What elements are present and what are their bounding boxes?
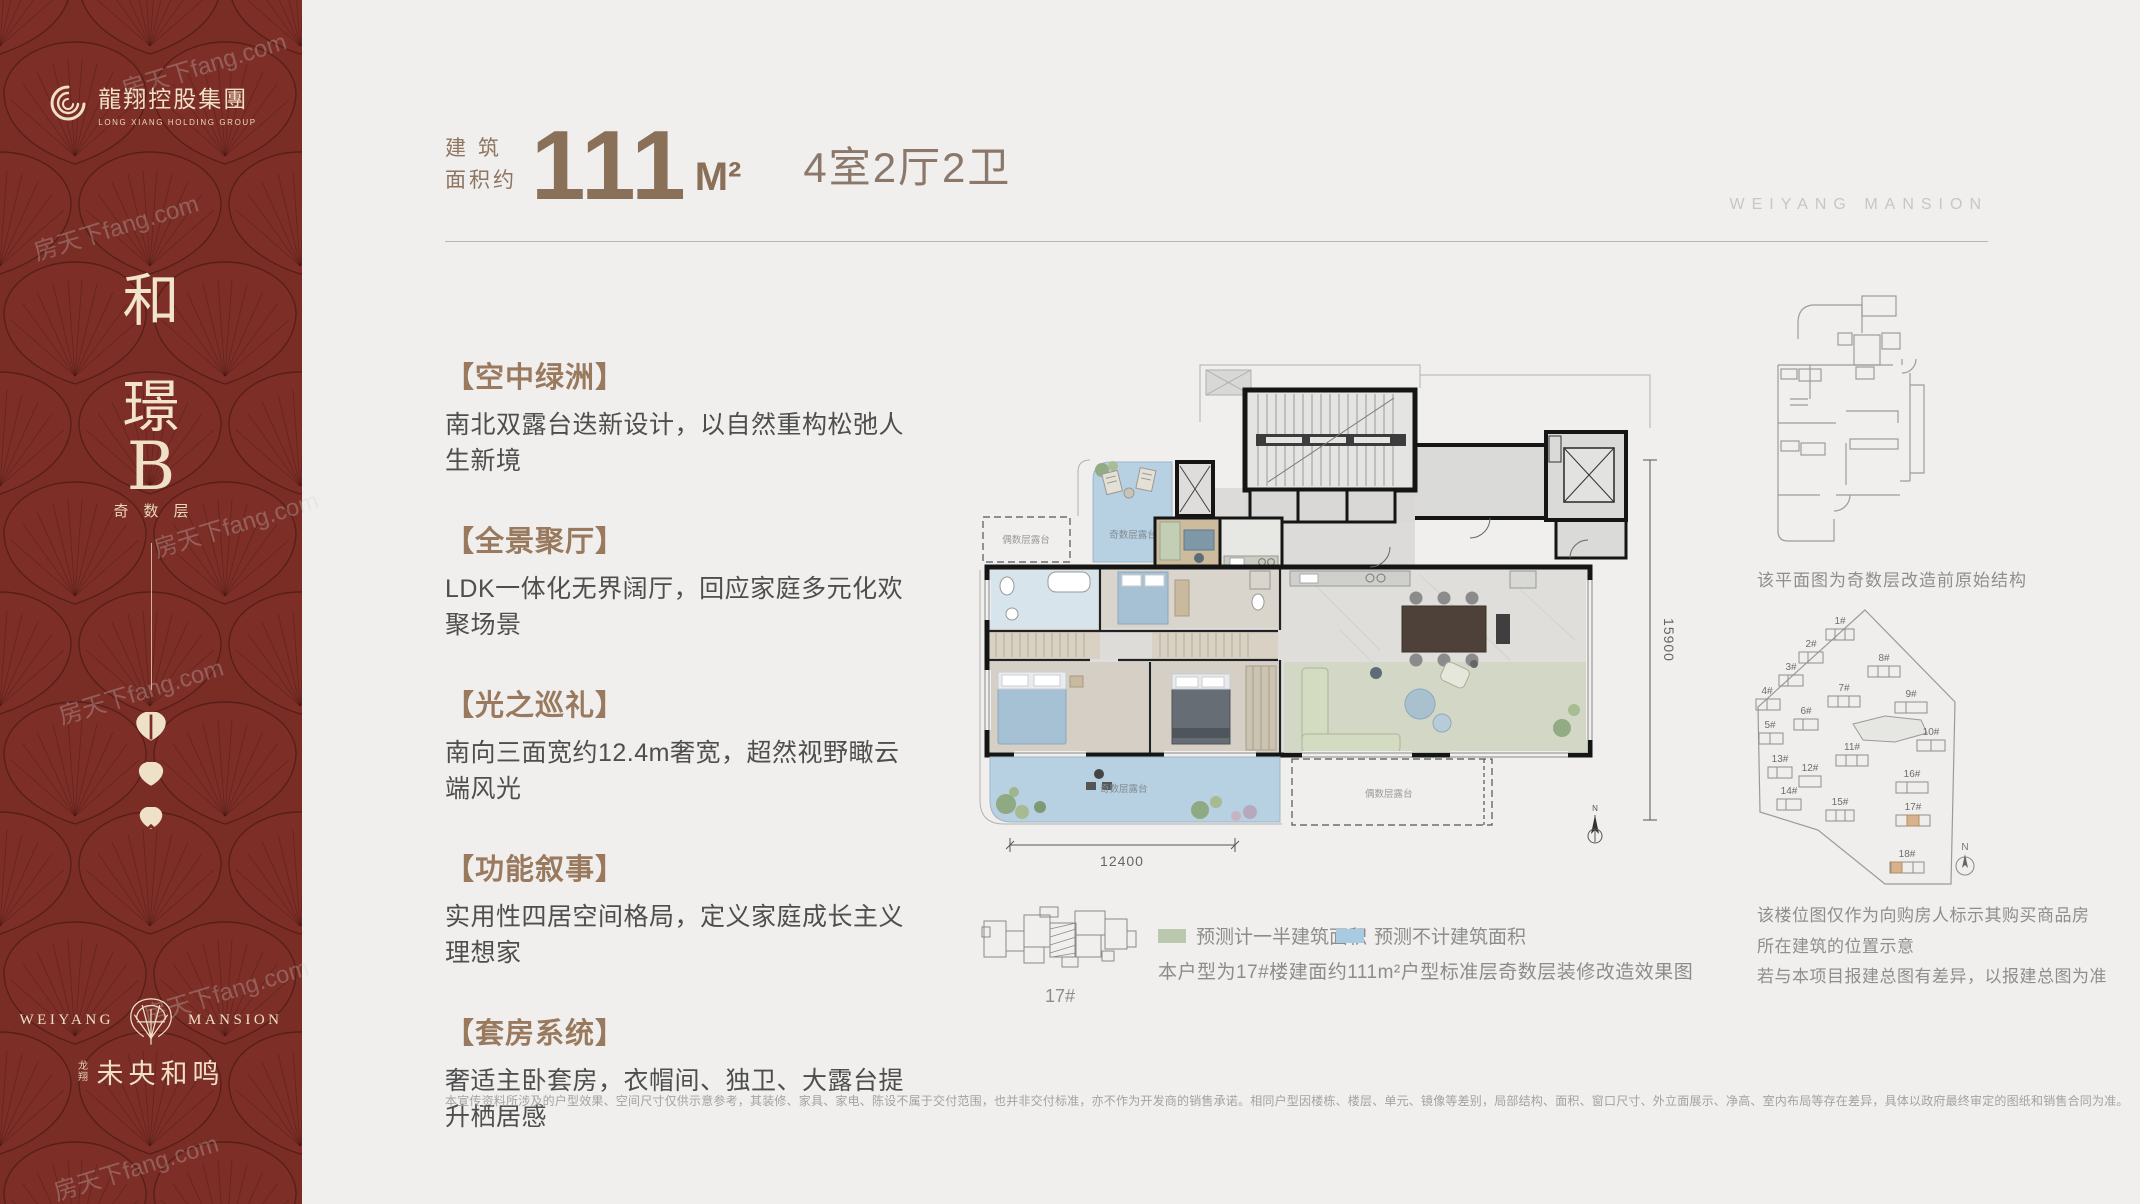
original-structure-plan bbox=[1750, 293, 1955, 561]
legend-excluded-area: 预测不计建筑面积 bbox=[1336, 922, 1526, 949]
unit-letter: B bbox=[0, 428, 302, 505]
header-rule bbox=[445, 241, 1988, 242]
plan-compass: N bbox=[1588, 804, 1602, 843]
feature-item: 【光之巡礼】 南向三面宽约12.4m奢宽，超然视野瞰云端风光 bbox=[445, 682, 915, 805]
site-note-line: 该楼位图仅作为向购房人标示其购买商品房 bbox=[1757, 901, 2107, 932]
feature-title: 【功能叙事】 bbox=[445, 846, 915, 888]
legend-swatch-green bbox=[1158, 929, 1186, 943]
site-label: 16# bbox=[1904, 769, 1921, 780]
feature-item: 【空中绿洲】 南北双露台迭新设计，以自然重构松弛人生新境 bbox=[445, 354, 915, 477]
floor-plan-drawing: 奇数层露台 偶数层露台 bbox=[950, 330, 1710, 890]
site-label: 14# bbox=[1781, 786, 1798, 797]
feature-item: 【全景聚厅】 LDK一体化无界阔厅，回应家庭多元化欢聚场景 bbox=[445, 518, 915, 641]
terrace-label-even-south: 偶数层露台 bbox=[1365, 788, 1413, 800]
south-terrace-odd: 奇数层露台 bbox=[990, 757, 1280, 822]
building-footprint-17 bbox=[980, 903, 1140, 985]
fan-icon bbox=[134, 712, 168, 742]
feature-item: 【套房系统】 奢适主卧套房，衣帽间、独卫、大露台提升栖居感 bbox=[445, 1010, 915, 1133]
ginkgo-tree-icon bbox=[124, 994, 178, 1046]
dim-height-label: 15900 bbox=[1661, 618, 1677, 662]
feature-desc: 南向三面宽约12.4m奢宽，超然视野瞰云端风光 bbox=[445, 733, 915, 805]
site-label: 17# bbox=[1905, 802, 1922, 813]
fan-icon bbox=[138, 807, 164, 830]
poster: 龍翔控股集團 LONG XIANG HOLDING GROUP 和 璟 B 奇数… bbox=[0, 0, 2140, 1204]
legend-excluded-label: 预测不计建筑面积 bbox=[1374, 922, 1526, 949]
area-label: 建 筑 面积约 bbox=[445, 133, 517, 196]
disclaimer: 本宣传资料所涉及的户型效果、空间尺寸仅供示意参考，其装修、家具、家电、陈设不属于… bbox=[445, 1092, 2135, 1109]
site-plan: 1# 2# 3# 4# 5# 6# 7# 8# 9# 10# 11# 12# 1… bbox=[1735, 602, 1983, 894]
site-label: 1# bbox=[1834, 616, 1846, 627]
terrace-label-odd-north: 奇数层露台 bbox=[1109, 529, 1157, 541]
group-logo-swirl-icon bbox=[45, 83, 89, 125]
building-tag: 17# bbox=[980, 986, 1140, 1007]
south-terrace-even: 偶数层露台 bbox=[1292, 759, 1492, 825]
group-logo: 龍翔控股集團 LONG XIANG HOLDING GROUP bbox=[0, 80, 302, 127]
header-brand-en: WEIYANG MANSION bbox=[1400, 196, 1988, 214]
mansion-brand-en-left: WEIYANG bbox=[20, 1012, 114, 1029]
area-unit: M² bbox=[695, 155, 742, 200]
site-label: 5# bbox=[1764, 720, 1776, 731]
site-label: 2# bbox=[1805, 639, 1817, 650]
sidebar: 龍翔控股集團 LONG XIANG HOLDING GROUP 和 璟 B 奇数… bbox=[0, 0, 302, 1204]
area-label-line2: 面积约 bbox=[445, 165, 517, 197]
feature-item: 【功能叙事】 实用性四居空间格局，定义家庭成长主义理想家 bbox=[445, 846, 915, 969]
terrace-label-odd-south: 奇数层露台 bbox=[1100, 783, 1148, 795]
site-label: 13# bbox=[1772, 754, 1789, 765]
site-label: 3# bbox=[1785, 662, 1797, 673]
area-headline: 建 筑 面积约 111 M² 4室2厅2卫 bbox=[445, 126, 1011, 204]
site-compass: N bbox=[1956, 842, 1974, 875]
terrace-label-even-north: 偶数层露台 bbox=[1002, 534, 1050, 546]
mansion-brand-cn: 未央和鸣 bbox=[97, 1052, 225, 1091]
feature-desc: 南北双露台迭新设计，以自然重构松弛人生新境 bbox=[445, 405, 915, 477]
site-note-line: 所在建筑的位置示意 bbox=[1757, 932, 2107, 963]
area-value: 111 bbox=[531, 126, 687, 204]
group-logo-cn: 龍翔控股集團 bbox=[98, 80, 256, 114]
site-label: 4# bbox=[1761, 686, 1773, 697]
feature-desc: LDK一体化无界阔厅，回应家庭多元化欢聚场景 bbox=[445, 569, 915, 641]
feature-title: 【全景聚厅】 bbox=[445, 518, 915, 560]
site-label: 8# bbox=[1878, 653, 1890, 664]
stair-core bbox=[1245, 390, 1415, 522]
legend-swatch-blue bbox=[1336, 929, 1364, 943]
site-label: 9# bbox=[1905, 689, 1917, 700]
site-label: 7# bbox=[1838, 683, 1850, 694]
floor-plan: 奇数层露台 偶数层露台 bbox=[950, 330, 1710, 890]
site-label: 11# bbox=[1844, 742, 1860, 753]
site-note-line: 若与本项目报建总图有差异，以报建总图为准 bbox=[1757, 962, 2107, 993]
room-layout: 4室2厅2卫 bbox=[803, 134, 1011, 195]
site-label: 12# bbox=[1802, 763, 1819, 774]
area-label-line1: 建 筑 bbox=[445, 133, 517, 165]
small-elevator bbox=[1177, 462, 1213, 516]
feature-title: 【空中绿洲】 bbox=[445, 354, 915, 396]
original-plan-caption: 该平面图为奇数层改造前原始结构 bbox=[1757, 566, 2027, 591]
floor-tag: 奇数层 bbox=[0, 500, 302, 521]
project-name-char1: 和 bbox=[0, 248, 302, 354]
fan-icon bbox=[137, 762, 165, 787]
site-compass-n: N bbox=[1961, 842, 1968, 853]
fan-ornaments bbox=[0, 712, 302, 830]
plan-caption: 本户型为17#楼建面约111m²户型标准层奇数层装修改造效果图 bbox=[1158, 957, 1693, 984]
feature-title: 【套房系统】 bbox=[445, 1010, 915, 1052]
site-label: 10# bbox=[1923, 727, 1940, 738]
sidebar-divider-line bbox=[151, 543, 152, 690]
dimension-height: 15900 bbox=[1643, 460, 1677, 820]
dim-width-label: 12400 bbox=[1100, 853, 1144, 869]
north-terrace-even: 偶数层露台 bbox=[983, 517, 1070, 562]
site-label: 18# bbox=[1899, 849, 1916, 860]
plan-compass-n: N bbox=[1592, 804, 1598, 813]
mansion-brand: WEIYANG MANSION 龙翔 未央和鸣 bbox=[0, 994, 302, 1091]
site-label: 6# bbox=[1800, 706, 1812, 717]
site-label: 15# bbox=[1832, 797, 1849, 808]
feature-title: 【光之巡礼】 bbox=[445, 682, 915, 724]
site-notes: 该楼位图仅作为向购房人标示其购买商品房 所在建筑的位置示意 若与本项目报建总图有… bbox=[1757, 901, 2107, 993]
group-logo-en: LONG XIANG HOLDING GROUP bbox=[98, 118, 256, 127]
mansion-brand-en-right: MANSION bbox=[188, 1012, 283, 1029]
mansion-brand-cn-prefix: 龙翔 bbox=[78, 1061, 90, 1083]
feature-desc: 实用性四居空间格局，定义家庭成长主义理想家 bbox=[445, 897, 915, 969]
dimension-width: 12400 bbox=[1006, 838, 1239, 869]
feature-list: 【空中绿洲】 南北双露台迭新设计，以自然重构松弛人生新境 【全景聚厅】 LDK一… bbox=[445, 354, 915, 1174]
